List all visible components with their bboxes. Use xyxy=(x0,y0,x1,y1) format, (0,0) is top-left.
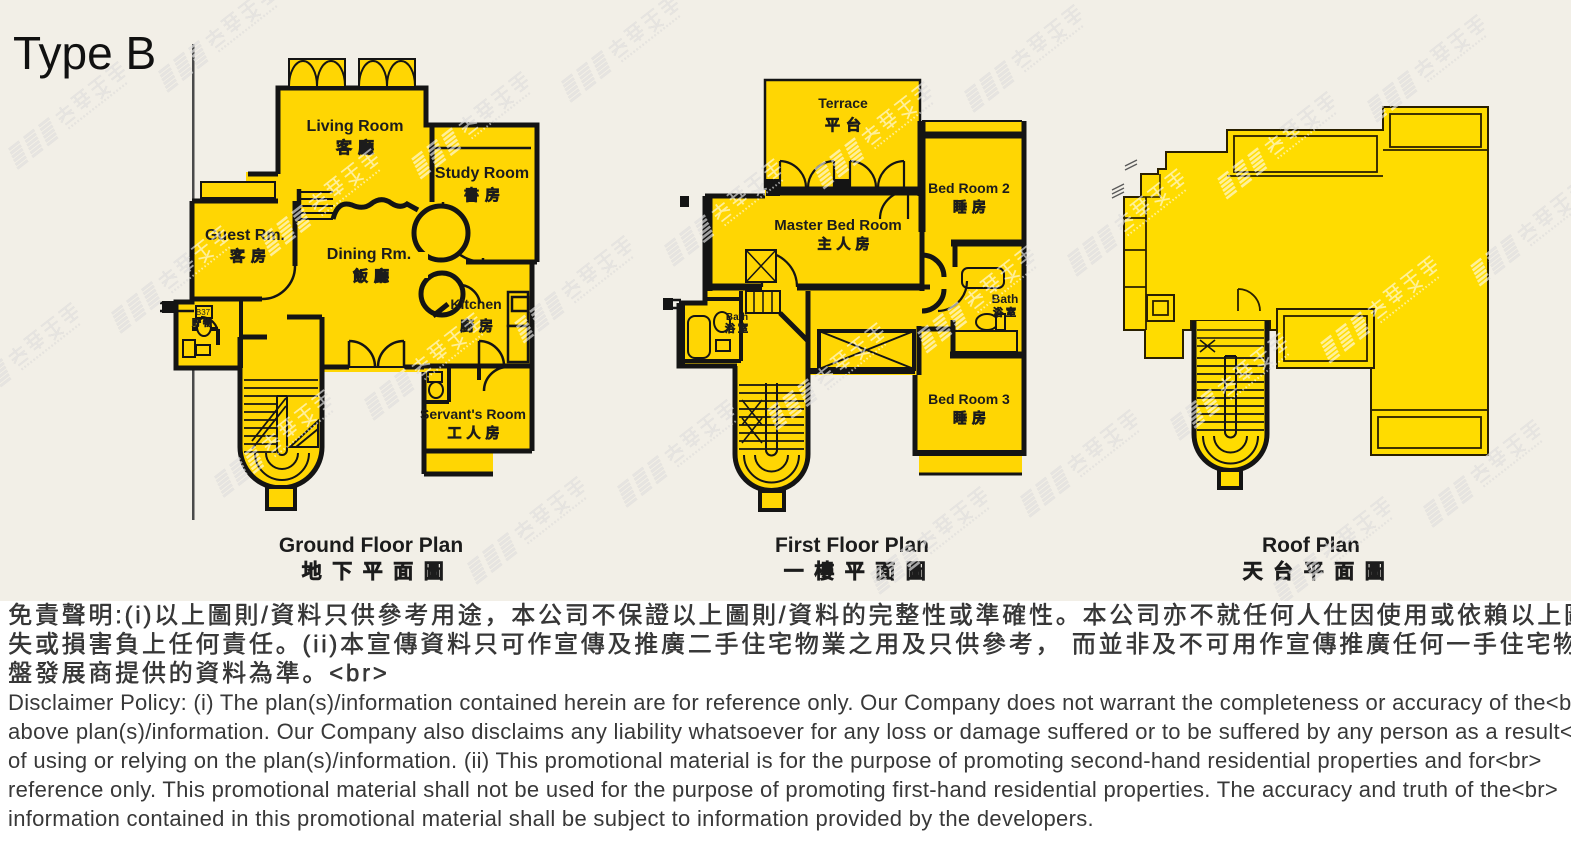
svg-text:睡房: 睡房 xyxy=(953,199,991,215)
svg-text:書房: 書房 xyxy=(464,186,506,204)
svg-text:地下平面圖: 地下平面圖 xyxy=(302,560,455,583)
svg-text:浴室: 浴室 xyxy=(993,306,1019,319)
svg-text:Ground Floor Plan: Ground Floor Plan xyxy=(279,534,463,557)
svg-text:Kitchen: Kitchen xyxy=(450,296,501,312)
svg-text:Living Room: Living Room xyxy=(307,118,404,135)
svg-text:工人房: 工人房 xyxy=(448,425,505,441)
svg-text:飯廳: 飯廳 xyxy=(352,267,395,285)
svg-text:Servant's Room: Servant's Room xyxy=(420,406,526,422)
svg-text:浴室: 浴室 xyxy=(725,322,751,335)
svg-text:Master Bed Room: Master Bed Room xyxy=(774,217,902,234)
svg-text:Bed Room 2: Bed Room 2 xyxy=(928,180,1010,196)
svg-text:B37: B37 xyxy=(196,308,211,317)
svg-text:Study Room: Study Room xyxy=(435,165,529,182)
svg-text:客房: 客房 xyxy=(229,247,272,265)
svg-text:貯物: 貯物 xyxy=(192,317,214,328)
svg-text:睡房: 睡房 xyxy=(953,410,991,426)
svg-text:Terrace: Terrace xyxy=(818,95,868,111)
svg-text:主人房: 主人房 xyxy=(818,236,875,252)
svg-text:Type B: Type B xyxy=(13,27,156,79)
svg-text:Bath: Bath xyxy=(726,312,748,323)
svg-text:Bed Room 3: Bed Room 3 xyxy=(928,391,1010,407)
svg-text:Bath: Bath xyxy=(992,292,1019,306)
svg-text:平台: 平台 xyxy=(825,116,867,134)
svg-text:Dining Rm.: Dining Rm. xyxy=(327,246,411,263)
